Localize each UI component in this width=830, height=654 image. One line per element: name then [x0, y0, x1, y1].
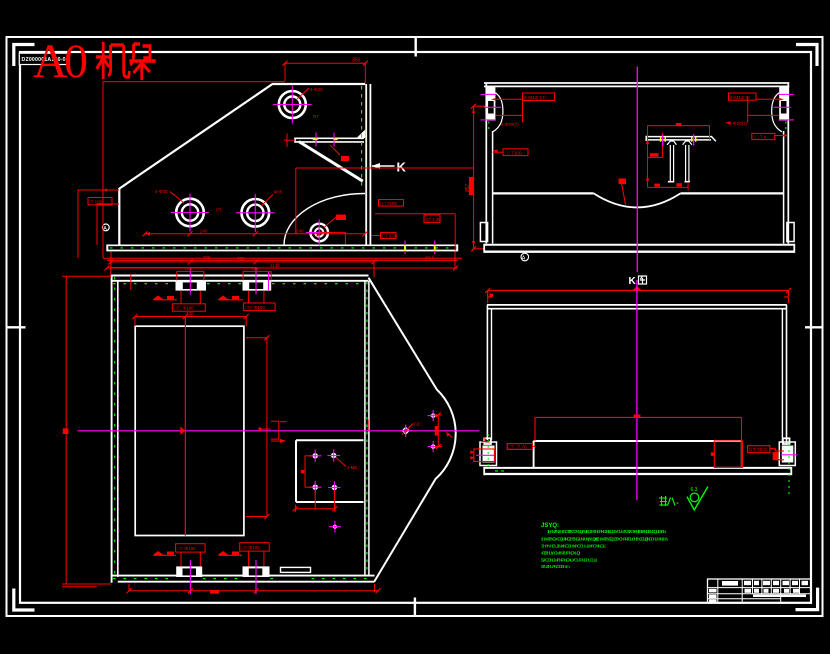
svg-text:C7□O□C: C7□O□C — [749, 447, 769, 453]
svg-text:□7□ Φ100: □7□ Φ100 — [174, 306, 194, 311]
svg-text:C7 1.30: C7 1.30 — [426, 217, 442, 222]
svg-text:C2□: C2□ — [414, 421, 423, 426]
svg-text:JSYQ:: JSYQ: — [541, 523, 559, 529]
svg-text:R7: R7 — [313, 114, 319, 119]
svg-text:4-Φ28: 4-Φ28 — [310, 87, 323, 92]
svg-text:□7 100: □7 100 — [88, 200, 103, 205]
svg-text:240: 240 — [200, 229, 208, 234]
svg-text:2-M12□□□: 2-M12□□□ — [524, 95, 546, 101]
svg-text:240: 240 — [296, 229, 304, 234]
svg-text:□7□Φ100: □7□Φ100 — [241, 545, 260, 550]
svg-text:708: 708 — [237, 256, 245, 261]
svg-text:705: 705 — [203, 255, 211, 260]
svg-text:A: A — [103, 226, 107, 232]
svg-text:3.HANHOUJINXINGSHIXIAOCHULIXIA: 3.HANHOUJINXINGSHIXIAOCHULIXIAOYINGLI. — [541, 544, 606, 549]
svg-text:2.HANFENGYAOQIUPINGZHENGJUNYUN: 2.HANFENGYAOQIUPINGZHENGJUNYUN, WUQI, XI… — [541, 537, 669, 542]
svg-text:Φ35: Φ35 — [274, 190, 283, 195]
svg-text:857: 857 — [465, 183, 471, 192]
svg-text:A: A — [522, 255, 526, 261]
svg-text:□7 □7.70: □7 □7.70 — [508, 444, 527, 449]
svg-text:(7): (7) — [216, 207, 222, 212]
svg-text:4-Φ35: 4-Φ35 — [155, 189, 168, 194]
svg-text:C7 0.36: C7 0.36 — [382, 233, 398, 238]
svg-text:□□ 7.4: □□ 7.4 — [753, 134, 767, 139]
svg-text:125: 125 — [185, 266, 193, 271]
svg-text:K: K — [397, 160, 407, 175]
svg-text:6.3: 6.3 — [691, 487, 698, 493]
svg-text:350: 350 — [352, 58, 361, 64]
svg-text:6.TUZHUANGGB-mm.: 6.TUZHUANGGB-mm. — [541, 564, 570, 569]
svg-text:4-Φ20(7): 4-Φ20(7) — [729, 121, 748, 126]
svg-text:5.JIAGONGMIANFANGXIUYOUFANGHUC: 5.JIAGONGMIANFANGXIUYOUFANGHUCULI. — [541, 558, 597, 563]
svg-text:125: 125 — [251, 266, 259, 271]
svg-text:4-M8: 4-M8 — [347, 465, 358, 470]
svg-text:A0: A0 — [33, 35, 88, 88]
svg-text:K: K — [629, 276, 637, 287]
svg-text:□7□ Φ100: □7□ Φ100 — [245, 305, 265, 310]
svg-text:4-Φ20(7): 4-Φ20(7) — [501, 122, 520, 127]
svg-text:□7□Φ100: □7□Φ100 — [177, 546, 196, 551]
svg-text:1140: 1140 — [270, 263, 280, 268]
svg-text:□□ 7100: □□ 7100 — [505, 150, 522, 155]
svg-text:24.4: 24.4 — [425, 255, 434, 260]
svg-text:□□ 7100: □□ 7100 — [380, 201, 397, 206]
svg-text:4.FEIZHUYAOMIANTUFANGXIUQI.: 4.FEIZHUYAOMIANTUFANGXIUQI. — [541, 551, 581, 556]
svg-text:1.HANJIANZHENGTIJIAGONGQIAN, J: 1.HANJIANZHENGTIJIAGONGQIAN, JIAOZHENGPI… — [547, 529, 666, 534]
svg-text:700: 700 — [186, 311, 194, 316]
svg-text:2-M12□□: 2-M12□□ — [730, 95, 749, 101]
